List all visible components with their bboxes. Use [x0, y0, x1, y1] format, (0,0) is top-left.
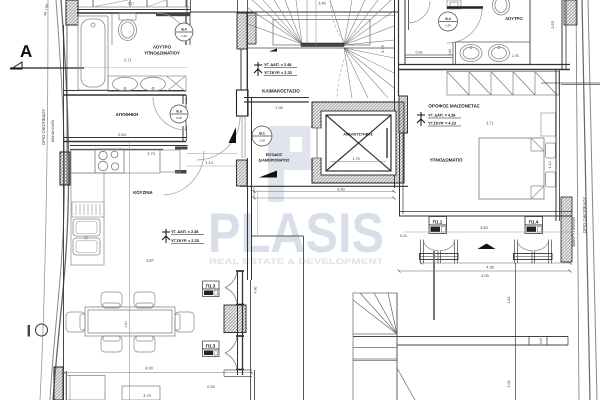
svg-text:1.60: 1.60 [124, 321, 128, 328]
svg-text:1.63: 1.63 [550, 20, 555, 29]
svg-text:2.71: 2.71 [124, 58, 133, 63]
svg-text:1.08: 1.08 [507, 381, 511, 388]
svg-text:Β.4: Β.4 [445, 17, 450, 21]
svg-text:ΥΠΝΟΔΩΜΑΤΙΟΥ: ΥΠΝΟΔΩΜΑΤΙΟΥ [144, 51, 180, 56]
svg-text:Π1.3: Π1.3 [206, 344, 216, 349]
svg-text:1.14: 1.14 [205, 160, 214, 165]
svg-text:ΟΡΙΟ ΟΙΚΟΠΕΔΟΥ: ΟΡΙΟ ΟΙΚΟΠΕΔΟΥ [41, 109, 46, 146]
svg-text:2.35: 2.35 [512, 54, 519, 58]
svg-text:0.30: 0.30 [207, 385, 214, 389]
svg-text:4.12: 4.12 [548, 162, 552, 169]
svg-text:ΛΟΥΤΡΟ: ΛΟΥΤΡΟ [153, 45, 172, 50]
svg-text:4.90: 4.90 [254, 287, 258, 294]
svg-text:3.71: 3.71 [486, 121, 495, 126]
svg-text:ΥΓ. ΔΑΠ. = 4.38: ΥΓ. ΔΑΠ. = 4.38 [428, 114, 455, 118]
svg-text:1.60: 1.60 [181, 34, 187, 38]
svg-text:Π1.3: Π1.3 [206, 284, 216, 289]
svg-text:ΜΑΝΔΗΛΑΡΑ: ΜΑΝΔΗΛΑΡΑ [51, 119, 55, 142]
svg-text:3.73: 3.73 [147, 152, 154, 156]
svg-text:1.82: 1.82 [507, 297, 511, 304]
svg-text:Π1.4: Π1.4 [529, 220, 539, 225]
svg-text:3.87: 3.87 [146, 258, 155, 263]
svg-text:3.19: 3.19 [381, 45, 385, 52]
svg-text:ΛΟΥΤΡΟ: ΛΟΥΤΡΟ [505, 16, 523, 21]
svg-text:ΥΓ. ΔΑΠ. = 2.48: ΥΓ. ΔΑΠ. = 2.48 [171, 230, 198, 234]
svg-text:4.00: 4.00 [481, 274, 488, 278]
svg-text:0.60: 0.60 [448, 49, 452, 55]
svg-text:ΚΛΙΜΑΚΟΣΤΑΣΙΟ: ΚΛΙΜΑΚΟΣΤΑΣΙΟ [262, 89, 300, 94]
svg-text:Π1.1: Π1.1 [433, 220, 443, 225]
svg-text:ΑΝΕΛΚΥΣΤΗΡΑΣ: ΑΝΕΛΚΥΣΤΗΡΑΣ [343, 133, 373, 137]
svg-text:Θ.5: Θ.5 [176, 110, 182, 114]
svg-text:2.21: 2.21 [128, 2, 134, 6]
svg-text:ΥΓ. ΔΑΠ. = 2.48: ΥΓ. ΔΑΠ. = 2.48 [264, 63, 291, 67]
svg-text:Β.4: Β.4 [181, 28, 186, 32]
svg-text:1.00: 1.00 [275, 106, 282, 110]
svg-text:PLASIS: PLASIS [208, 201, 384, 264]
svg-text:REAL ESTATE & DEVELOPMENT: REAL ESTATE & DEVELOPMENT [209, 257, 383, 266]
svg-text:3.83: 3.83 [480, 226, 487, 230]
svg-text:3.40: 3.40 [318, 2, 325, 6]
svg-text:ΟΡΟΦΟΣ ΜΑΙΖΟΝΕΤΑΣ: ΟΡΟΦΟΣ ΜΑΙΖΟΝΕΤΑΣ [428, 104, 480, 109]
svg-text:3.60: 3.60 [337, 188, 344, 192]
svg-text:ΟΡΙΟ ΟΙΚΟΠΕΔΟΥ: ΟΡΙΟ ΟΙΚΟΠΕΔΟΥ [582, 197, 587, 234]
svg-text:ΥΠΝΟΔΩΜΑΤΙΟ: ΥΠΝΟΔΩΜΑΤΙΟ [429, 158, 463, 163]
svg-text:4.38: 4.38 [486, 266, 493, 270]
svg-text:0.35: 0.35 [539, 338, 543, 344]
svg-text:0.20: 0.20 [400, 234, 407, 238]
svg-text:ΔΙΑΜΕΡΙΣΜΑΤΟΣ: ΔΙΑΜΕΡΙΣΜΑΤΟΣ [258, 159, 290, 163]
svg-text:ΚΟΥΖΙΝΑ: ΚΟΥΖΙΝΑ [133, 190, 153, 195]
svg-text:3.70: 3.70 [143, 394, 150, 398]
svg-text:ΕΙΣΟΔΟΣ: ΕΙΣΟΔΟΣ [266, 153, 283, 157]
svg-text:2.64: 2.64 [118, 132, 127, 137]
svg-text:4.00: 4.00 [145, 366, 154, 371]
svg-text:1.00: 1.00 [259, 139, 265, 143]
svg-text:ΥΓ.ΣΚΥΡ. = 4.23: ΥΓ.ΣΚΥΡ. = 4.23 [428, 122, 456, 126]
svg-text:ΑΠΟΘΗΚΗ: ΑΠΟΘΗΚΗ [116, 112, 139, 117]
svg-text:0.90: 0.90 [176, 116, 182, 120]
svg-text:ΥΓ.ΣΚΥΡ. = 2.33: ΥΓ.ΣΚΥΡ. = 2.33 [171, 239, 199, 243]
svg-text:1.70: 1.70 [352, 157, 359, 161]
svg-text:A: A [20, 42, 32, 61]
svg-text:1.60: 1.60 [445, 24, 451, 28]
svg-text:ΥΓ.ΣΚΥΡ. = 2.33: ΥΓ.ΣΚΥΡ. = 2.33 [264, 71, 292, 75]
svg-text:0.90: 0.90 [416, 51, 423, 55]
svg-text:Θ.1: Θ.1 [259, 132, 265, 136]
